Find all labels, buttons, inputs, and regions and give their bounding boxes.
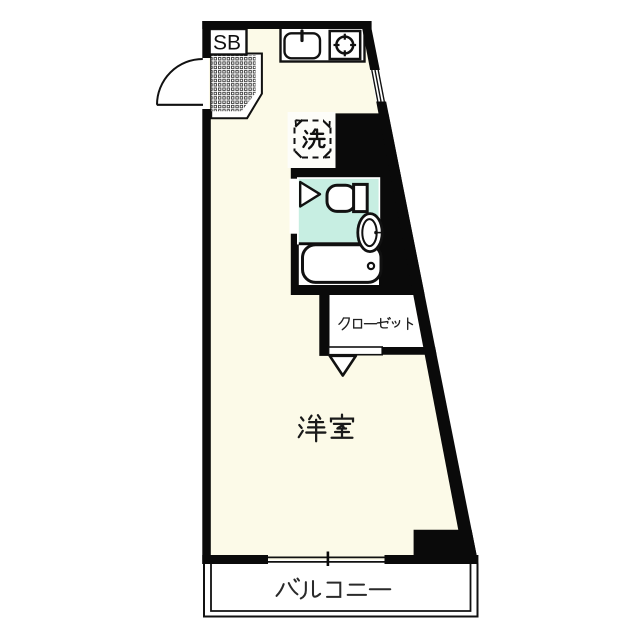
svg-text:SB: SB <box>213 32 241 55</box>
